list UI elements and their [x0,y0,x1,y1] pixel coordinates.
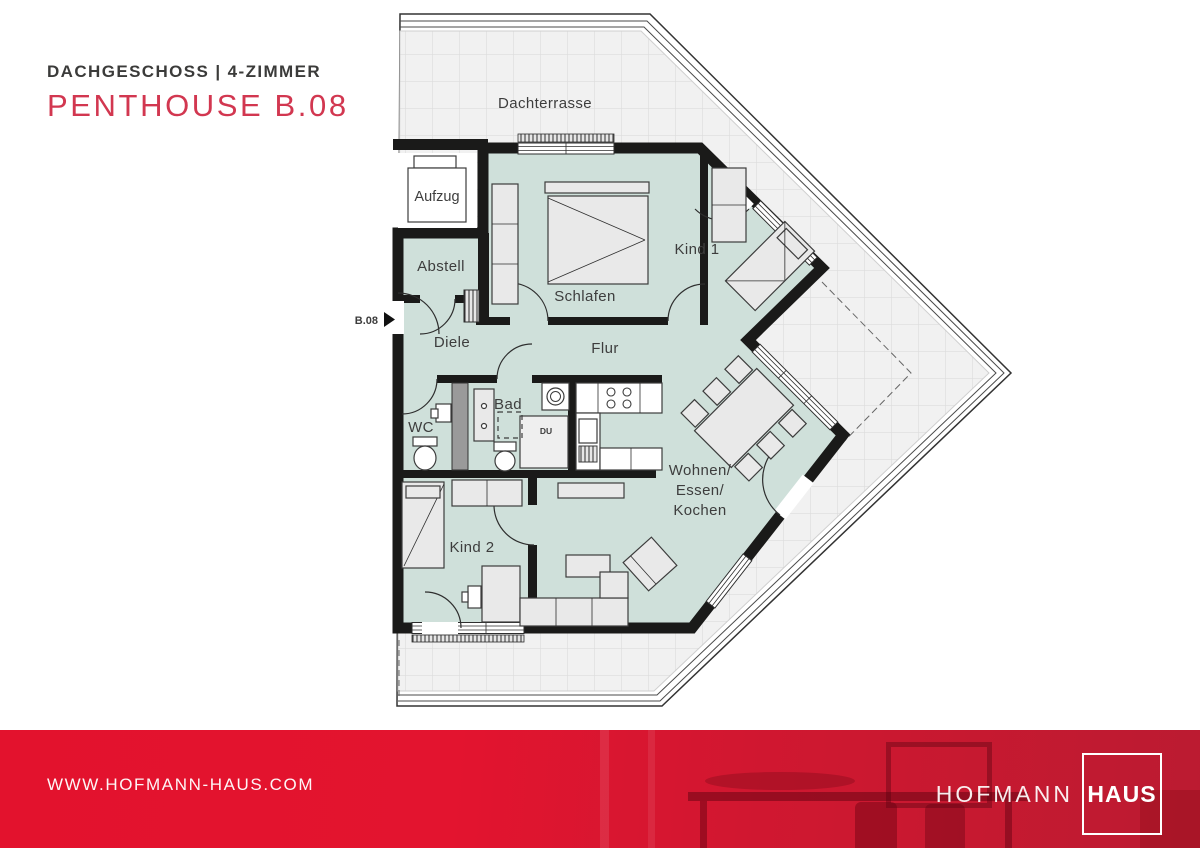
photo-shape [705,772,855,790]
logo-text-hofmann: HOFMANN [936,781,1073,808]
room-label-aufzug: Aufzug [414,189,459,205]
bath-vanity [474,389,494,441]
room-label-wc: WC [408,419,434,436]
company-logo: HOFMANN HAUS [936,755,1162,833]
title-block: DACHGESCHOSS | 4-ZIMMER PENTHOUSE B.08 [47,62,349,124]
entrance-opening [392,301,404,334]
kitchen-counter [576,383,662,413]
room-label-flur: Flur [591,340,618,357]
shower-label: DU [540,426,552,436]
wardrobe [492,184,518,304]
double-bed [545,182,649,284]
room-label-kind1: Kind 1 [675,241,720,258]
logo-text-haus: HAUS [1087,781,1156,808]
room-label-schlafen: Schlafen [554,288,616,305]
room-label-abstell: Abstell [417,258,465,275]
unit-label: B.08 [355,315,378,327]
lobby-wall [393,139,488,150]
floorplan-svg: Aufzug [340,0,1040,730]
washing-machine-icon [542,383,569,410]
brochure-page: DACHGESCHOSS | 4-ZIMMER PENTHOUSE B.08 [0,0,1200,848]
toilet-icon [494,442,516,471]
photo-shape [648,730,655,848]
window-shutter-band [412,635,524,642]
room-label-essen: Essen/ [676,482,725,499]
single-bed [402,482,444,568]
photo-shape [700,801,707,848]
sideboard [558,483,624,498]
room-label-wohnen: Wohnen/ [669,462,732,479]
page-title: PENTHOUSE B.08 [47,88,349,124]
room-label-bad: Bad [494,396,522,413]
photo-shape [855,802,897,848]
shower [520,416,568,468]
room-label-kind2: Kind 2 [450,539,495,556]
room-label-dachterrasse: Dachterrasse [498,95,592,112]
website-url: WWW.HOFMANN-HAUS.COM [47,775,314,795]
room-label-diele: Diele [434,334,470,351]
elevator-machine-box [414,156,456,168]
logo-box: HAUS [1082,753,1162,835]
kitchen-counter [600,448,662,470]
window-shutter-band [518,134,614,142]
window-band [518,143,614,154]
wc-sink [431,409,438,418]
photo-shape [600,730,609,848]
hall-wardrobe [464,290,479,322]
room-label-kochen: Kochen [673,502,726,519]
kind2-terrace-door-opening [422,622,458,634]
installation-shaft [452,383,468,470]
floor-subtitle: DACHGESCHOSS | 4-ZIMMER [47,62,349,82]
kitchen-sink-column [576,413,600,470]
toilet-icon [413,437,437,470]
unit-marker: B.08 [355,312,395,327]
